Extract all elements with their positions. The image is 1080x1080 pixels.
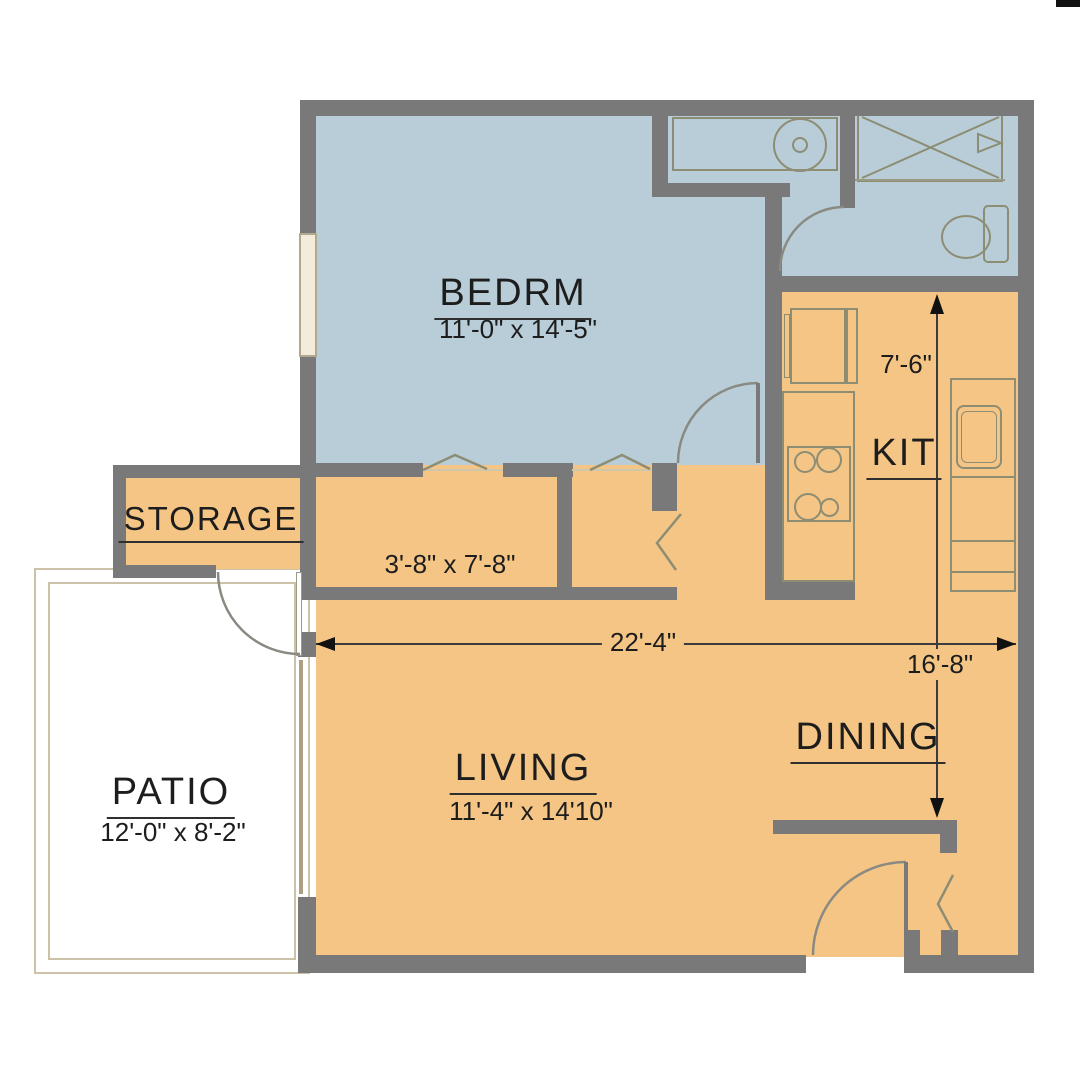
entry-closet-jamb-top — [940, 820, 957, 853]
wall-bedroom-bottom-a — [315, 463, 423, 477]
wall-hall-bottom — [300, 587, 677, 600]
counter-divider — [950, 571, 1016, 573]
burner-icon — [820, 498, 839, 517]
patio-sliding-door — [299, 660, 303, 894]
wall-bottom-left — [316, 955, 806, 973]
counter-divider — [950, 476, 1016, 478]
burner-icon — [794, 493, 822, 521]
wall-bath-south — [765, 276, 1018, 292]
wall-west-lower — [298, 897, 316, 973]
bedroom-label: BEDRM — [434, 272, 591, 320]
wall-kitchen-south — [765, 582, 855, 600]
kitchen-depth-dim: 7'-6" — [880, 349, 932, 380]
refrigerator-door — [846, 308, 858, 384]
wall-storage-top — [113, 465, 310, 478]
wall-entry-closet-top — [773, 820, 957, 834]
wall-east-exterior — [1018, 100, 1034, 973]
entry-closet-jamb-bottom — [941, 930, 958, 957]
counter-divider — [950, 540, 1016, 542]
refrigerator — [790, 308, 846, 384]
vanity-sink-drain-icon — [792, 137, 808, 153]
refrigerator-hinge — [784, 314, 790, 378]
wall-bedroom-east — [765, 183, 782, 600]
scan-artifact — [1056, 0, 1080, 7]
kitchen-label: KIT — [866, 432, 941, 480]
bedroom-window — [299, 233, 317, 357]
living-dims: 11'-4" x 14'10" — [449, 796, 613, 827]
overall-width-dim: 22'-4" — [602, 627, 684, 658]
wall-shower-divider — [840, 100, 855, 208]
burner-icon — [794, 451, 816, 473]
floor-plan: BEDRM 11'-0" x 14'-5" STORAGE 3'-8" x 7'… — [0, 0, 1080, 1080]
wall-storage-bottom — [113, 565, 216, 578]
patio-dims: 12'-0" x 8'-2" — [100, 817, 245, 848]
shower-curb — [855, 179, 1005, 181]
storage-label: STORAGE — [119, 500, 304, 543]
wall-closet-divider — [557, 463, 572, 593]
bedroom-dims: 11'-0" x 14'-5" — [439, 314, 597, 345]
kitchen-sink-basin-icon — [961, 411, 997, 463]
shower-stall — [857, 112, 1003, 182]
dining-label: DINING — [791, 716, 946, 764]
patio-label: PATIO — [107, 771, 235, 819]
storage-door-leaf — [296, 572, 302, 656]
wall-niche-stub — [652, 463, 677, 511]
entry-door-jamb — [904, 930, 920, 957]
wall-vanity-west — [652, 100, 668, 190]
living-label: LIVING — [450, 747, 597, 795]
toilet-tank-icon — [983, 205, 1009, 263]
closet-dims: 3'-8" x 7'-8" — [385, 549, 516, 580]
dining-depth-dim: 16'-8" — [899, 649, 981, 680]
burner-icon — [816, 447, 842, 473]
wall-bottom-right — [904, 955, 1034, 973]
